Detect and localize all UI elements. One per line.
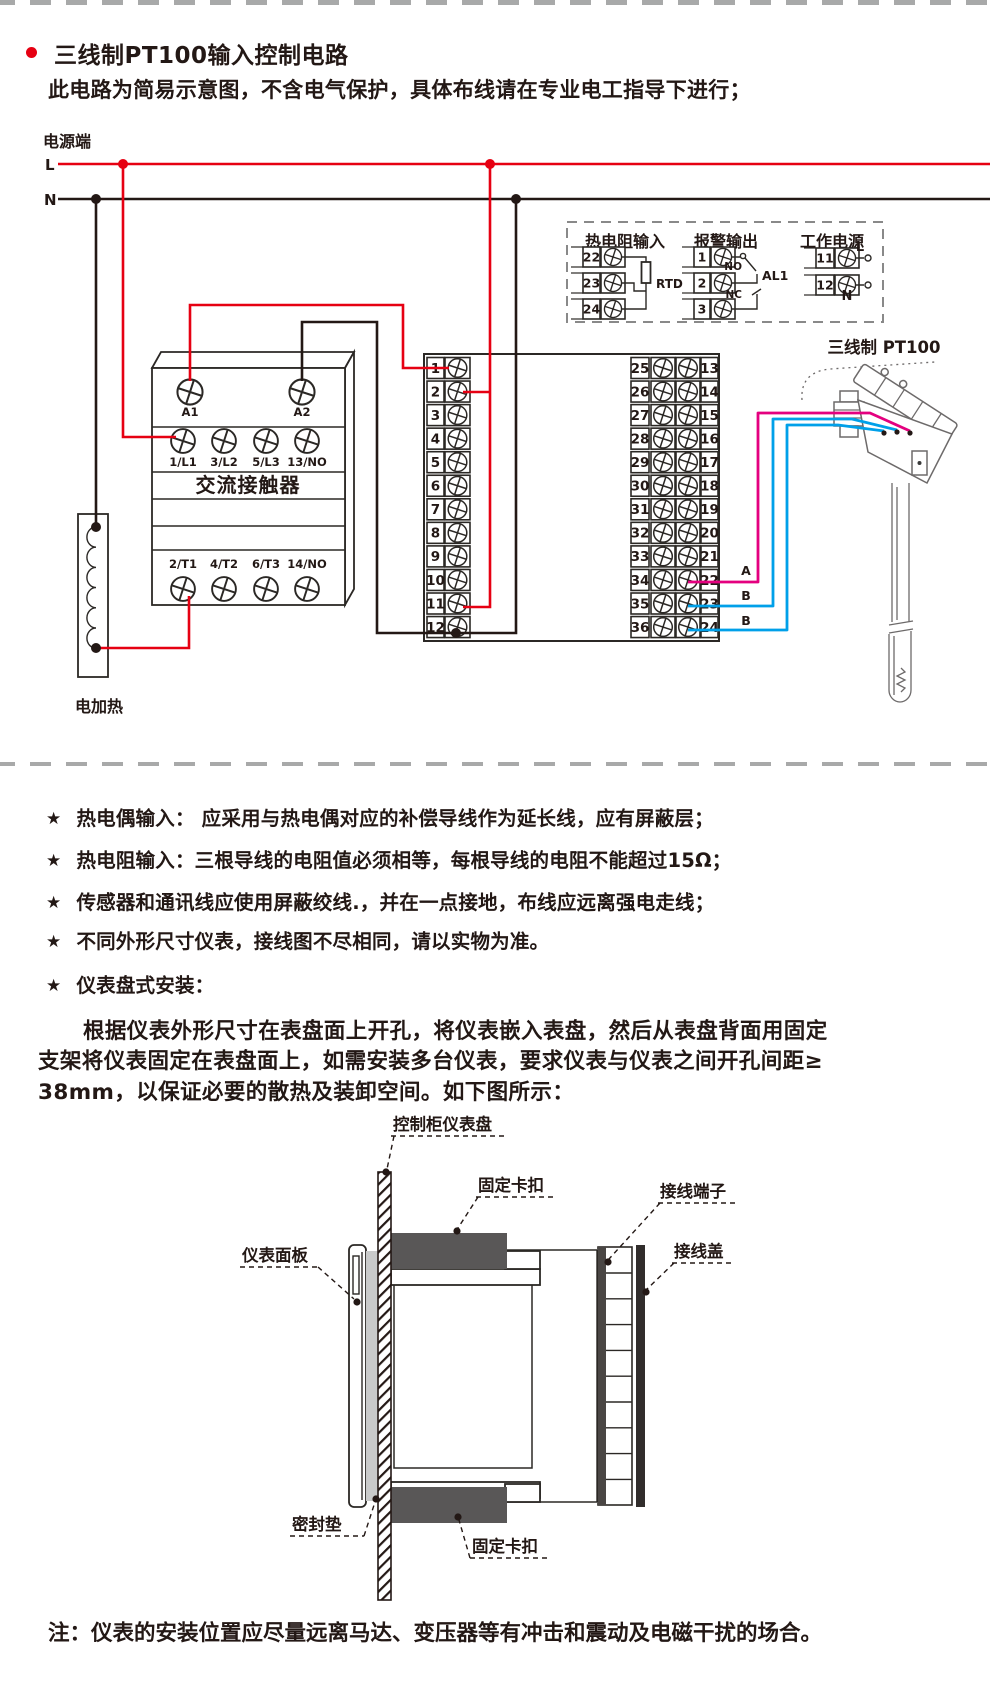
- wire-a-label: A: [741, 563, 751, 578]
- contactor-terminal-label: A2: [294, 405, 311, 419]
- terminal-number: 35: [631, 596, 650, 612]
- contactor-top-face: [152, 352, 354, 368]
- label-terminal-cover: 接线盖: [674, 1241, 724, 1261]
- terminal-number: 5: [431, 455, 440, 471]
- heater-body: [78, 514, 108, 677]
- terminal-number: 2: [431, 384, 440, 400]
- page-title: 三线制PT100输入控制电路: [54, 36, 349, 70]
- star-bullet-icon: ★: [46, 851, 61, 871]
- terminal-number: 16: [700, 431, 719, 447]
- instrument-case: [391, 1250, 597, 1502]
- terminal-number: 11: [426, 596, 445, 612]
- note-text: 热电阻输入：三根导线的电阻值必须相等，每根导线的电阻不能超过15Ω；: [76, 849, 731, 872]
- terminal-number: 13: [700, 361, 719, 377]
- power-n-label: N: [842, 289, 853, 304]
- contactor-side-face: [345, 352, 354, 605]
- power-l-terminal-icon: [865, 255, 871, 261]
- sensor-pin-dot: [894, 429, 899, 434]
- terminal-number: 23: [700, 596, 719, 612]
- title-bullet-icon: [26, 47, 37, 58]
- label-fixing-clip-top: 固定卡扣: [478, 1175, 544, 1195]
- terminal-number: 11: [816, 251, 833, 266]
- relay-blade-icon: [745, 258, 756, 271]
- terminal-number: 2: [698, 276, 707, 291]
- terminal-number: 1: [698, 250, 707, 265]
- pt100-sensor-icon: [802, 357, 962, 702]
- note-item: ★热电阻输入：三根导线的电阻值必须相等，每根导线的电阻不能超过15Ω；: [46, 844, 731, 873]
- star-bullet-icon: ★: [46, 932, 61, 952]
- label-front-panel: 仪表面板: [241, 1245, 309, 1265]
- note-text: 仪表盘式安装：: [76, 974, 214, 997]
- page-subtitle: 此电路为简易示意图，不含电气保护，具体布线请在专业电工指导下进行；: [48, 74, 751, 104]
- contactor-terminal-label: 5/L3: [252, 455, 280, 469]
- terminal-number: 20: [700, 526, 719, 542]
- alarm-no-label: NO: [724, 261, 742, 273]
- line-l-label: L: [45, 156, 55, 174]
- terminal-number: 24: [700, 620, 719, 636]
- label-gasket: 密封垫: [292, 1514, 342, 1534]
- terminal-number: 3: [698, 302, 707, 317]
- sealing-gasket: [366, 1251, 378, 1501]
- sensor-pin-dot: [881, 430, 886, 435]
- terminal-number: 28: [631, 431, 650, 447]
- note-text: 传感器和通讯线应使用屏蔽绞线.，并在一点接地，布线应远离强电走线；: [76, 891, 714, 914]
- star-bullet-icon: ★: [46, 976, 61, 996]
- junction-dot: [511, 194, 521, 204]
- section-divider-top: [0, 0, 990, 5]
- terminal-number: 26: [631, 384, 650, 400]
- power-n-terminal-icon: [865, 282, 871, 288]
- bottom-note: 注：仪表的安装位置应尽量远离马达、变压器等有冲击和震动及电磁干扰的场合。: [48, 1616, 822, 1647]
- terminal-block-rear: [598, 1247, 632, 1505]
- alarm-terminals: 123: [682, 246, 735, 320]
- fixing-clip-top: [391, 1233, 507, 1269]
- wire-b1-label: B: [741, 588, 751, 603]
- section-divider-mid: [0, 762, 990, 766]
- terminal-number: 30: [631, 479, 650, 495]
- terminal-number: 6: [431, 479, 440, 495]
- terminal-number: 25: [631, 361, 650, 377]
- rtd-resistor-icon: [642, 262, 651, 283]
- install-paragraph-line: 根据仪表外形尺寸在表盘面上开孔，将仪表嵌入表盘，然后从表盘背面用固定: [83, 1014, 828, 1045]
- terminal-number: 10: [426, 573, 445, 589]
- contactor-terminal-label: 2/T1: [169, 557, 197, 571]
- terminal-number: 19: [700, 502, 719, 518]
- terminal-cover-bar: [636, 1245, 645, 1507]
- label-cabinet-panel: 控制柜仪表盘: [393, 1114, 493, 1134]
- terminal-number: 3: [431, 408, 440, 424]
- terminal-number: 9: [431, 549, 440, 565]
- terminal-number: 21: [700, 549, 719, 565]
- terminal-number: 34: [631, 573, 650, 589]
- terminal-number: 17: [700, 455, 719, 471]
- contactor-terminal-label: 1/L1: [169, 455, 197, 469]
- rtd-component-label: RTD: [656, 277, 683, 291]
- manual-page: { "colors":{"accent_red":"#e60012","line…: [0, 0, 990, 1692]
- note-text: 热电偶输入： 应采用与热电偶对应的补偿导线作为延长线，应有屏蔽层；: [76, 807, 713, 830]
- sensor-pin-dot: [907, 430, 912, 435]
- contactor-terminal-label: A1: [182, 405, 199, 419]
- contactor-terminal-label: 13/NO: [287, 455, 327, 469]
- contactor-name: 交流接触器: [196, 473, 301, 497]
- terminal-number: 12: [816, 278, 833, 293]
- wire-b2-label: B: [741, 613, 751, 628]
- heater-label: 电加热: [75, 697, 123, 716]
- alarm-relay-name: AL1: [762, 268, 788, 283]
- fixing-clip-bottom: [391, 1487, 507, 1523]
- wiring-diagram: 电源端 L N 电加热 A1A21/L13/L25/L313/NO2/T14/T…: [0, 120, 990, 730]
- install-paragraph-line: 支架将仪表固定在表盘面上，如需安装多台仪表，要求仪表与仪表之间开孔间距≥: [38, 1044, 823, 1075]
- line-n-label: N: [44, 191, 57, 209]
- terminal-number: 4: [431, 431, 440, 447]
- note-text: 不同外形尺寸仪表，接线图不尽相同，请以实物为准。: [76, 930, 549, 953]
- star-bullet-icon: ★: [46, 893, 61, 913]
- label-fixing-clip-bottom: 固定卡扣: [472, 1536, 538, 1556]
- junction-dot: [485, 159, 495, 169]
- terminal-number: 23: [583, 276, 600, 291]
- note-item: ★仪表盘式安装：: [46, 969, 214, 998]
- note-item: ★热电偶输入： 应采用与热电偶对应的补偿导线作为延长线，应有屏蔽层；: [46, 802, 714, 831]
- junction-dot: [451, 628, 461, 638]
- contactor-terminal-label: 14/NO: [287, 557, 327, 571]
- terminal-number: 31: [631, 502, 650, 518]
- terminal-number: 7: [431, 502, 440, 518]
- sensor-label: 三线制 PT100: [827, 337, 940, 357]
- power-l-label: L: [856, 240, 864, 255]
- alarm-nc-label: NC: [726, 289, 743, 301]
- rtd-terminals: 222324: [571, 246, 625, 320]
- contactor-terminal-label: 3/L2: [210, 455, 238, 469]
- contactor-terminal-label: 6/T3: [252, 557, 280, 571]
- star-bullet-icon: ★: [46, 809, 61, 829]
- terminal-number: 15: [700, 408, 719, 424]
- junction-dot: [91, 194, 101, 204]
- instrument-front-bezel: [349, 1245, 366, 1507]
- terminal-number: 8: [431, 526, 440, 542]
- contactor-terminal-label: 4/T2: [210, 557, 238, 571]
- terminal-number: 22: [583, 250, 600, 265]
- terminal-number: 18: [700, 479, 719, 495]
- junction-dot: [118, 159, 128, 169]
- note-item: ★不同外形尺寸仪表，接线图不尽相同，请以实物为准。: [46, 925, 549, 954]
- terminal-number: 27: [631, 408, 650, 424]
- relay-contact-icon: [740, 253, 745, 258]
- terminal-number: 32: [631, 526, 650, 542]
- terminal-number: 29: [631, 455, 650, 471]
- label-terminals: 接线端子: [660, 1181, 727, 1201]
- power-side-label: 电源端: [43, 132, 91, 151]
- note-item: ★传感器和通讯线应使用屏蔽绞线.，并在一点接地，布线应远离强电走线；: [46, 886, 714, 915]
- cabinet-panel: [378, 1172, 391, 1600]
- terminal-number: 14: [700, 384, 719, 400]
- terminal-number: 36: [631, 620, 650, 636]
- junction-dot: [91, 643, 101, 653]
- junction-dot: [91, 522, 101, 532]
- terminal-number: 33: [631, 549, 650, 565]
- terminal-number: 24: [583, 302, 601, 317]
- installation-diagram: 控制柜仪表盘 固定卡扣 接线端子 接线盖 仪表面板 密封垫 固定卡扣: [230, 1095, 760, 1615]
